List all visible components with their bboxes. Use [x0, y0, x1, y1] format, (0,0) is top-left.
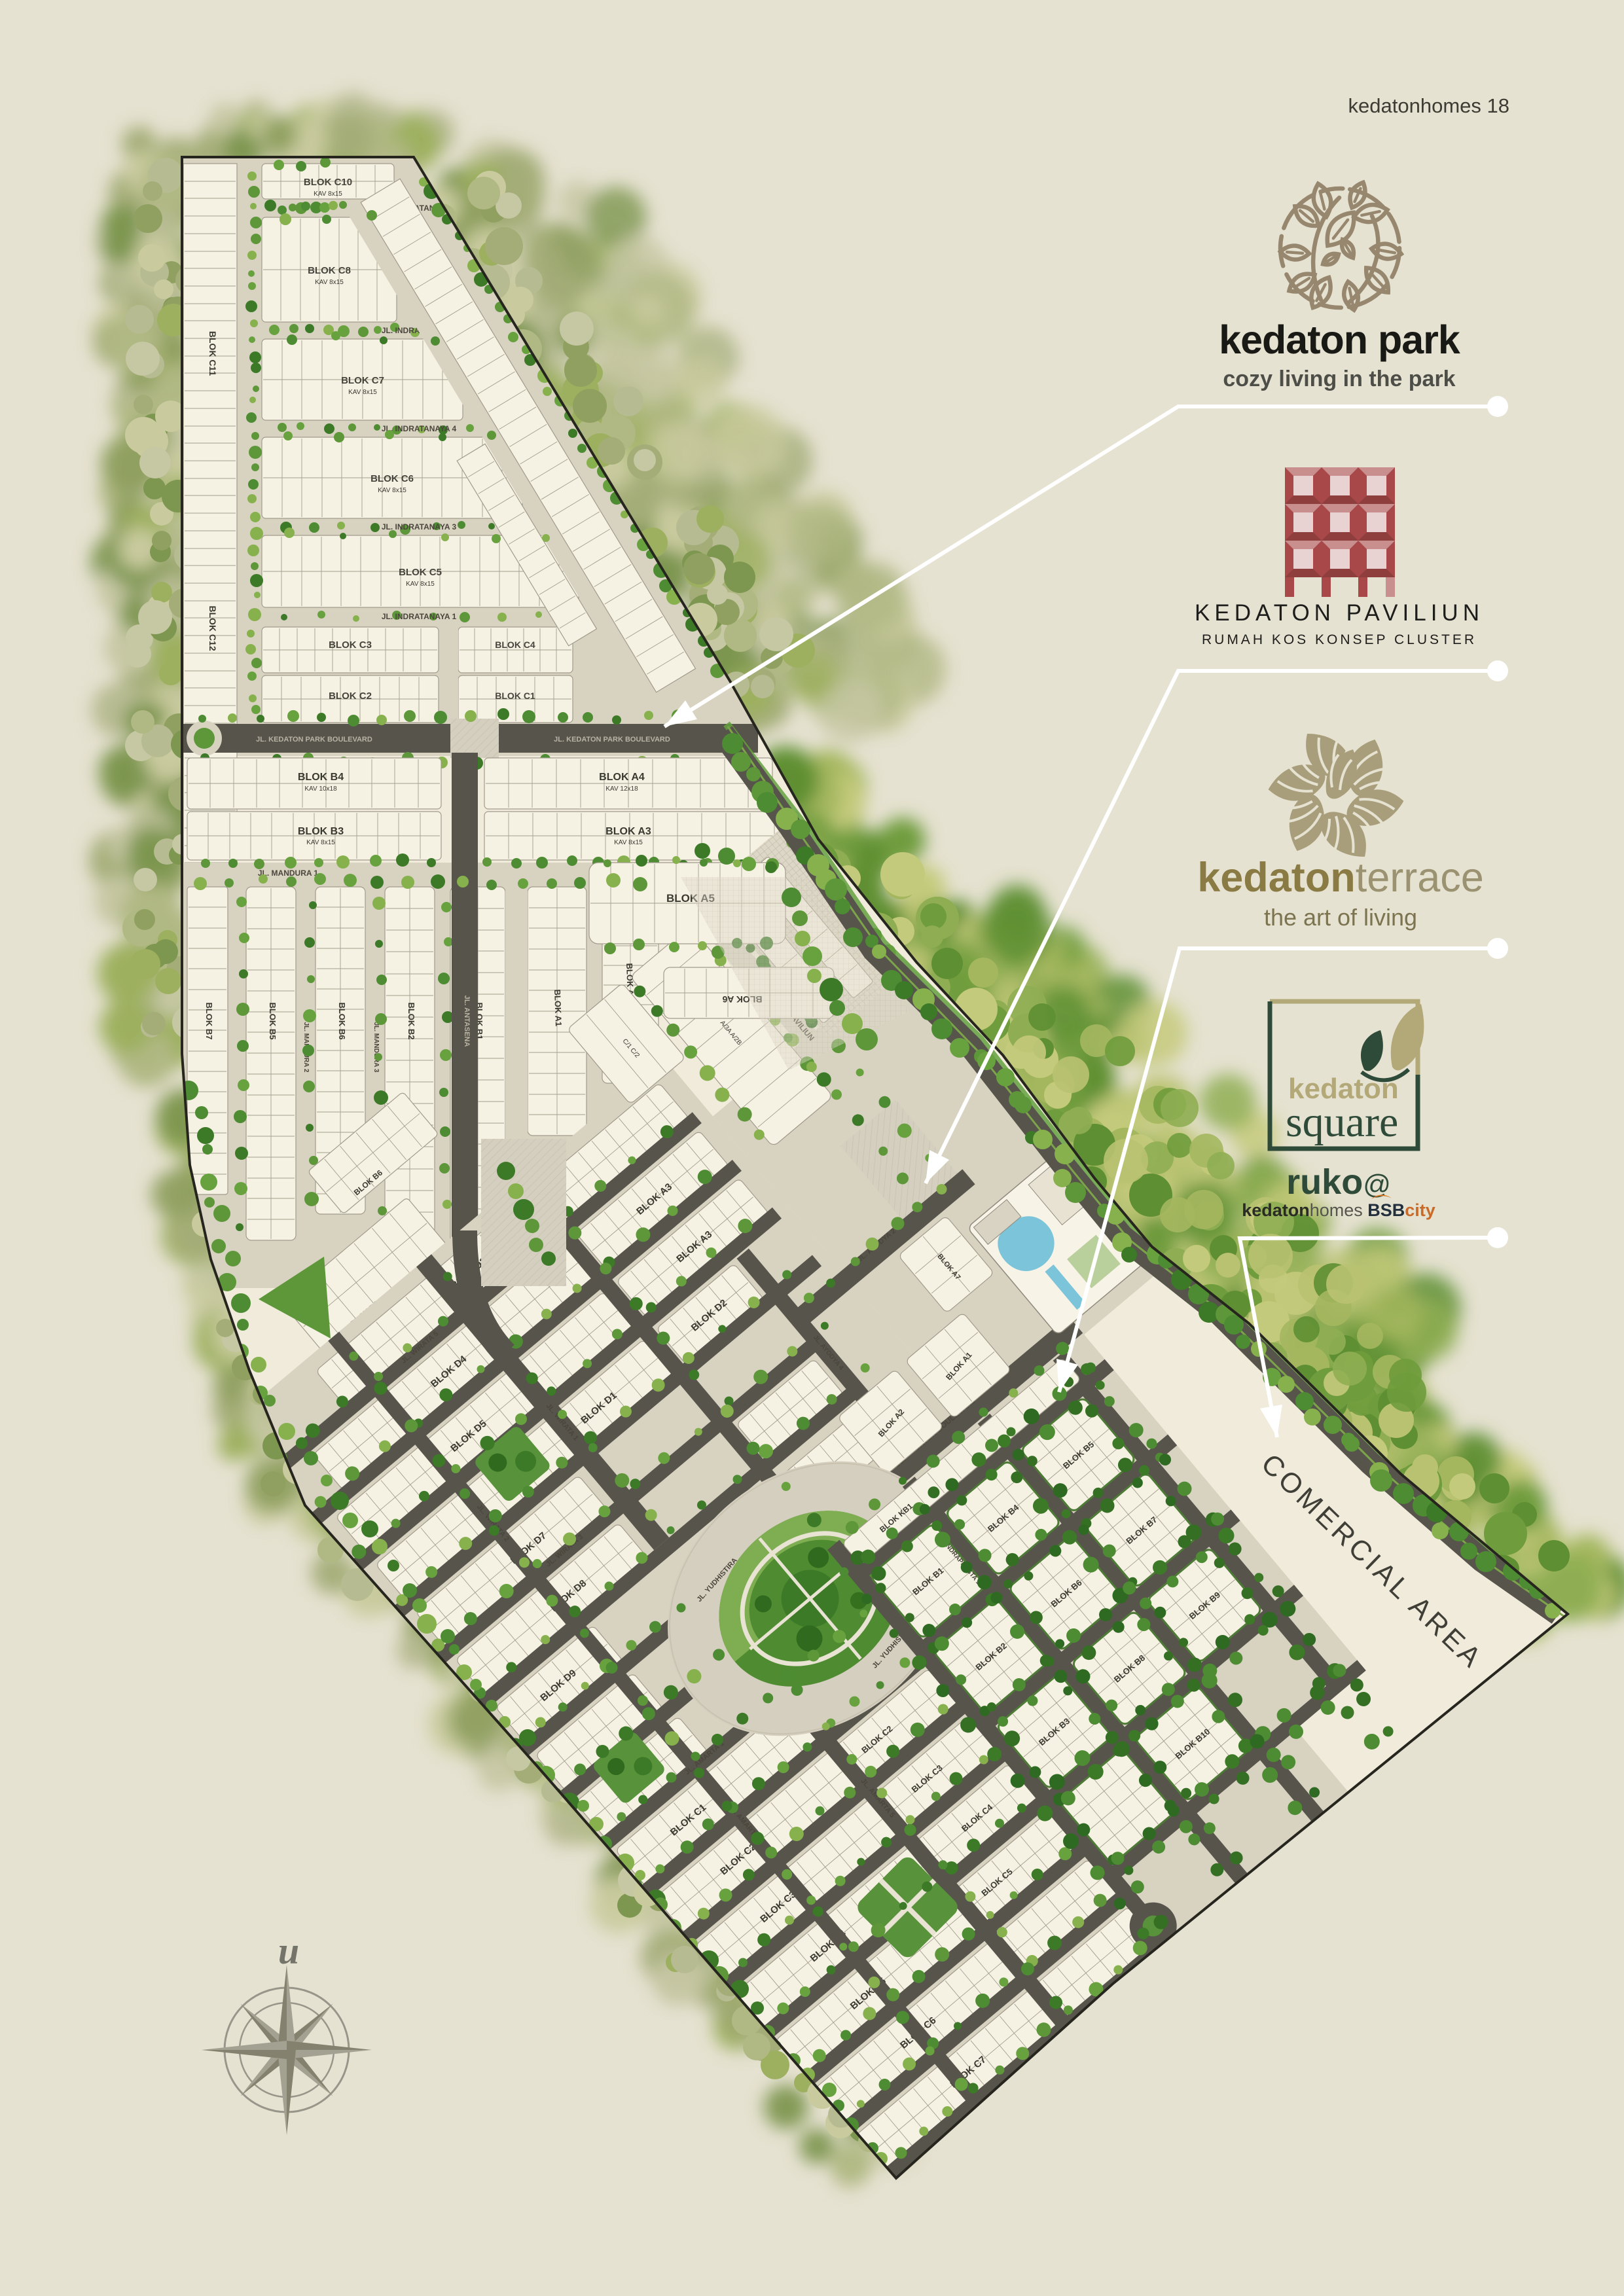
svg-text:BLOK C3: BLOK C3	[329, 639, 372, 651]
svg-text:kedatonhomes BSBcity: kedatonhomes BSBcity	[1242, 1200, 1435, 1220]
svg-text:BLOK C1: BLOK C1	[495, 691, 535, 701]
svg-text:u: u	[278, 1929, 299, 1972]
svg-text:BLOK B5: BLOK B5	[268, 1002, 278, 1039]
svg-text:BLOK B3: BLOK B3	[298, 826, 344, 837]
svg-text:BLOK C4: BLOK C4	[495, 639, 535, 650]
svg-text:KEDATON PAVILIUN: KEDATON PAVILIUN	[1195, 600, 1484, 626]
svg-text:BLOK A3: BLOK A3	[605, 826, 651, 837]
svg-text:BLOK C7: BLOK C7	[341, 375, 384, 386]
svg-text:BLOK B7: BLOK B7	[204, 1002, 214, 1039]
svg-text:BLOK C12: BLOK C12	[208, 605, 218, 651]
svg-text:JL. KEDATON PARK BOULEVARD: JL. KEDATON PARK BOULEVARD	[256, 736, 372, 744]
svg-text:BLOK C2: BLOK C2	[329, 691, 372, 702]
svg-text:BLOK C6: BLOK C6	[370, 473, 414, 484]
svg-text:JL. MANDURA 3: JL. MANDURA 3	[372, 1022, 380, 1073]
svg-text:KAV 8x15: KAV 8x15	[614, 839, 643, 846]
svg-text:the art of living: the art of living	[1264, 904, 1417, 931]
svg-text:BLOK C5: BLOK C5	[399, 567, 442, 578]
svg-text:kedatonterrace: kedatonterrace	[1197, 855, 1484, 901]
svg-text:JL. KEDATON PARK BOULEVARD: JL. KEDATON PARK BOULEVARD	[554, 736, 670, 744]
svg-text:JL. ANTASENA: JL. ANTASENA	[463, 996, 471, 1047]
svg-text:KAV 8x15: KAV 8x15	[314, 190, 342, 198]
svg-text:BLOK B2: BLOK B2	[406, 1002, 416, 1039]
svg-text:KAV 12x18: KAV 12x18	[605, 785, 638, 793]
svg-text:BLOK B4: BLOK B4	[298, 772, 344, 783]
svg-text:BLOK C11: BLOK C11	[208, 331, 218, 376]
svg-text:BLOK A4: BLOK A4	[599, 772, 645, 783]
svg-text:square: square	[1286, 1098, 1398, 1146]
svg-text:kedatonhomes 18: kedatonhomes 18	[1348, 94, 1509, 117]
svg-text:RUMAH KOS KONSEP CLUSTER: RUMAH KOS KONSEP CLUSTER	[1202, 632, 1477, 647]
svg-text:KAV 8x15: KAV 8x15	[378, 487, 406, 494]
svg-text:kedaton park: kedaton park	[1219, 317, 1460, 362]
svg-text:JL. MANDURA 1: JL. MANDURA 1	[258, 869, 319, 878]
svg-text:KAV 8x15: KAV 8x15	[315, 279, 344, 286]
svg-text:KAV 8x15: KAV 8x15	[406, 581, 435, 588]
svg-text:BLOK B6: BLOK B6	[337, 1002, 347, 1039]
svg-text:BLOK C10: BLOK C10	[304, 177, 352, 188]
svg-text:KAV 8x15: KAV 8x15	[348, 389, 377, 396]
svg-text:KAV 10x18: KAV 10x18	[304, 785, 337, 793]
svg-text:JL. INDRATANAYA 1: JL. INDRATANAYA 1	[382, 612, 457, 621]
svg-text:KAV 8x15: KAV 8x15	[306, 839, 335, 846]
svg-text:BLOK A1: BLOK A1	[552, 989, 564, 1026]
svg-text:BLOK C8: BLOK C8	[308, 265, 351, 276]
svg-text:cozy living in the park: cozy living in the park	[1223, 367, 1455, 391]
svg-text:JL. INDRATANAYA 3: JL. INDRATANAYA 3	[382, 522, 457, 531]
